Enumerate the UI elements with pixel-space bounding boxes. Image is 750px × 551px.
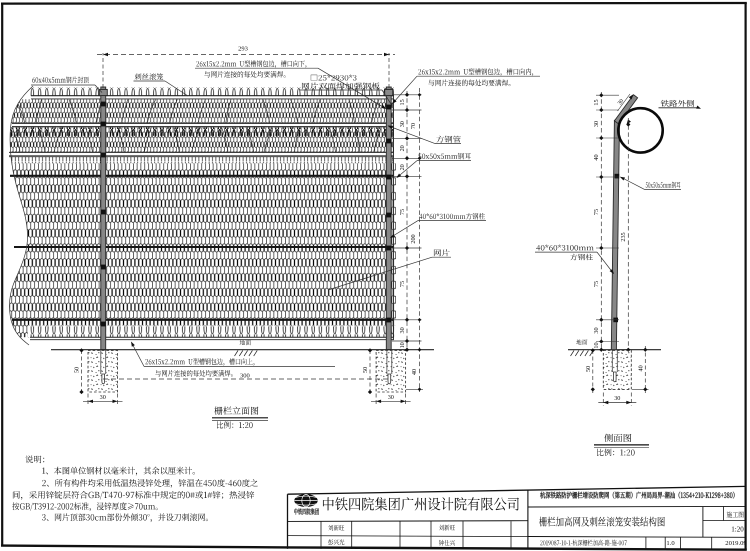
svg-text:75: 75 <box>593 209 600 215</box>
svg-text:10: 10 <box>399 342 406 348</box>
svg-text:70: 70 <box>410 123 417 129</box>
svg-text:15: 15 <box>593 99 600 105</box>
svg-text:50: 50 <box>362 367 369 373</box>
svg-text:20: 20 <box>399 164 406 170</box>
svg-text:50: 50 <box>585 366 592 372</box>
svg-text:30: 30 <box>399 327 406 333</box>
svg-text:75: 75 <box>399 281 406 287</box>
svg-text:300: 300 <box>240 373 250 380</box>
svg-text:40: 40 <box>593 154 600 160</box>
svg-text:1.0: 1.0 <box>666 540 675 547</box>
svg-text:75: 75 <box>593 281 600 287</box>
svg-text:10: 10 <box>593 342 600 348</box>
svg-text:30: 30 <box>593 121 600 127</box>
svg-text:30: 30 <box>388 394 394 401</box>
svg-text:1:20: 1:20 <box>731 526 744 534</box>
svg-text:2019.09: 2019.09 <box>725 540 747 547</box>
svg-text:20: 20 <box>399 145 406 151</box>
svg-text:235: 235 <box>620 232 627 241</box>
svg-text:40: 40 <box>637 365 644 371</box>
svg-text:75: 75 <box>399 209 406 215</box>
svg-text:30: 30 <box>614 395 620 402</box>
svg-text:200: 200 <box>410 234 417 243</box>
svg-text:50: 50 <box>74 367 81 373</box>
svg-text:30: 30 <box>399 121 406 127</box>
svg-text:30: 30 <box>593 327 600 333</box>
svg-text:15: 15 <box>399 99 406 105</box>
svg-text:293: 293 <box>238 46 248 53</box>
svg-text:40: 40 <box>411 369 418 375</box>
svg-text:30: 30 <box>100 394 106 401</box>
